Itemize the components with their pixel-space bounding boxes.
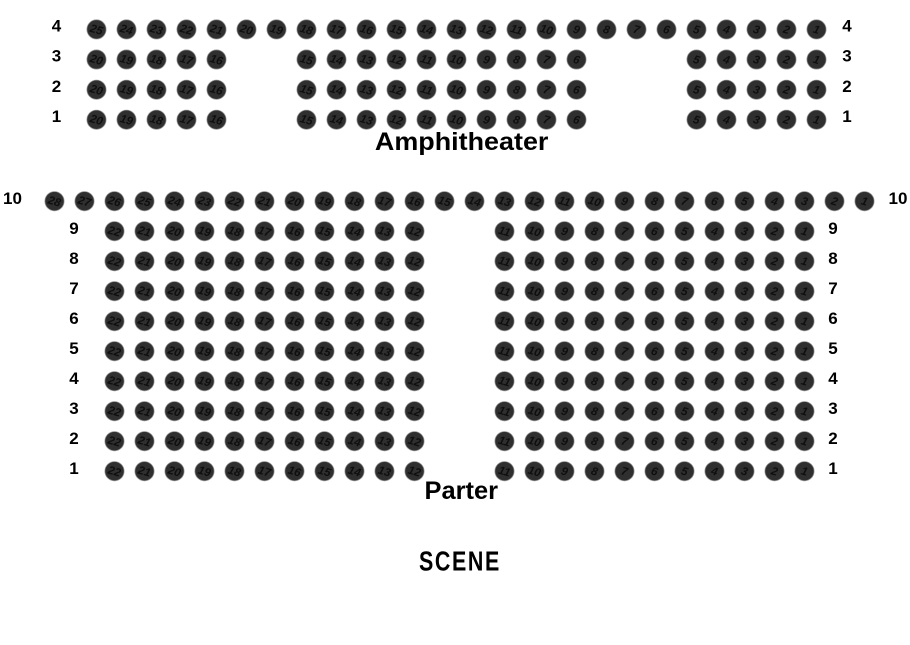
svg-text:3: 3	[842, 47, 851, 66]
svg-text:1: 1	[828, 459, 837, 478]
svg-text:2: 2	[842, 77, 851, 96]
svg-text:4: 4	[52, 17, 62, 36]
svg-text:SCENE: SCENE	[419, 547, 499, 577]
svg-text:4: 4	[842, 17, 852, 36]
svg-text:9: 9	[828, 219, 837, 238]
svg-text:1: 1	[842, 107, 851, 126]
svg-text:7: 7	[828, 279, 837, 298]
svg-text:4: 4	[828, 369, 838, 388]
svg-text:6: 6	[828, 309, 837, 328]
svg-text:10: 10	[889, 189, 908, 208]
svg-text:6: 6	[69, 309, 78, 328]
svg-text:1: 1	[69, 459, 78, 478]
svg-text:2: 2	[52, 77, 61, 96]
svg-text:2: 2	[828, 429, 837, 448]
svg-text:9: 9	[69, 219, 78, 238]
svg-text:2: 2	[69, 429, 78, 448]
svg-text:8: 8	[828, 249, 837, 268]
svg-text:3: 3	[828, 399, 837, 418]
svg-text:5: 5	[828, 339, 837, 358]
svg-text:1: 1	[52, 107, 61, 126]
svg-text:Amphitheater: Amphitheater	[375, 128, 549, 156]
svg-text:8: 8	[69, 249, 78, 268]
svg-text:3: 3	[69, 399, 78, 418]
svg-text:10: 10	[3, 189, 22, 208]
svg-text:4: 4	[69, 369, 79, 388]
svg-text:5: 5	[69, 339, 78, 358]
svg-text:7: 7	[69, 279, 78, 298]
svg-text:Parter: Parter	[425, 477, 499, 505]
svg-text:3: 3	[52, 47, 61, 66]
